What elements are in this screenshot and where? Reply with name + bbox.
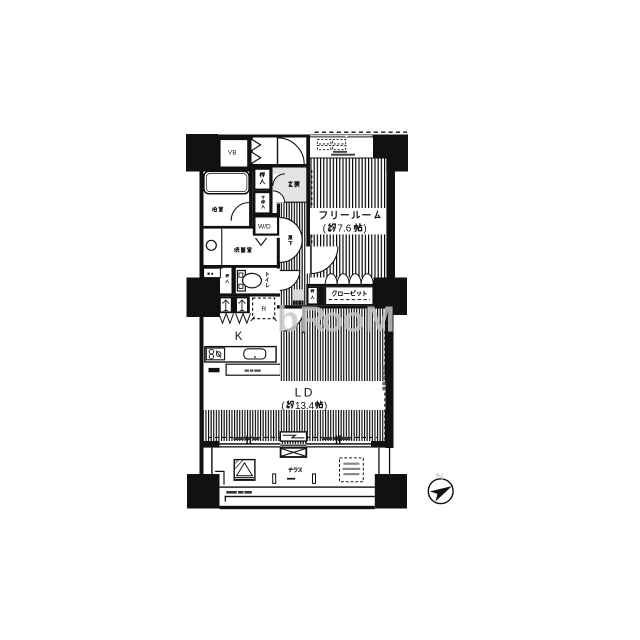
svg-text:o: o bbox=[322, 299, 344, 340]
svg-text:b: b bbox=[277, 299, 299, 340]
svg-text:M: M bbox=[365, 299, 395, 340]
svg-text:VB: VB bbox=[228, 151, 237, 157]
svg-text:): ) bbox=[324, 401, 327, 412]
svg-text:): ) bbox=[363, 224, 366, 235]
svg-text:13.4: 13.4 bbox=[295, 401, 315, 412]
svg-text:K: K bbox=[235, 331, 243, 343]
svg-text:W/D: W/D bbox=[258, 223, 271, 230]
svg-text:LD: LD bbox=[295, 385, 315, 399]
svg-text:R: R bbox=[261, 306, 266, 313]
svg-text:o: o bbox=[343, 299, 365, 340]
svg-text:7.6: 7.6 bbox=[337, 224, 351, 235]
